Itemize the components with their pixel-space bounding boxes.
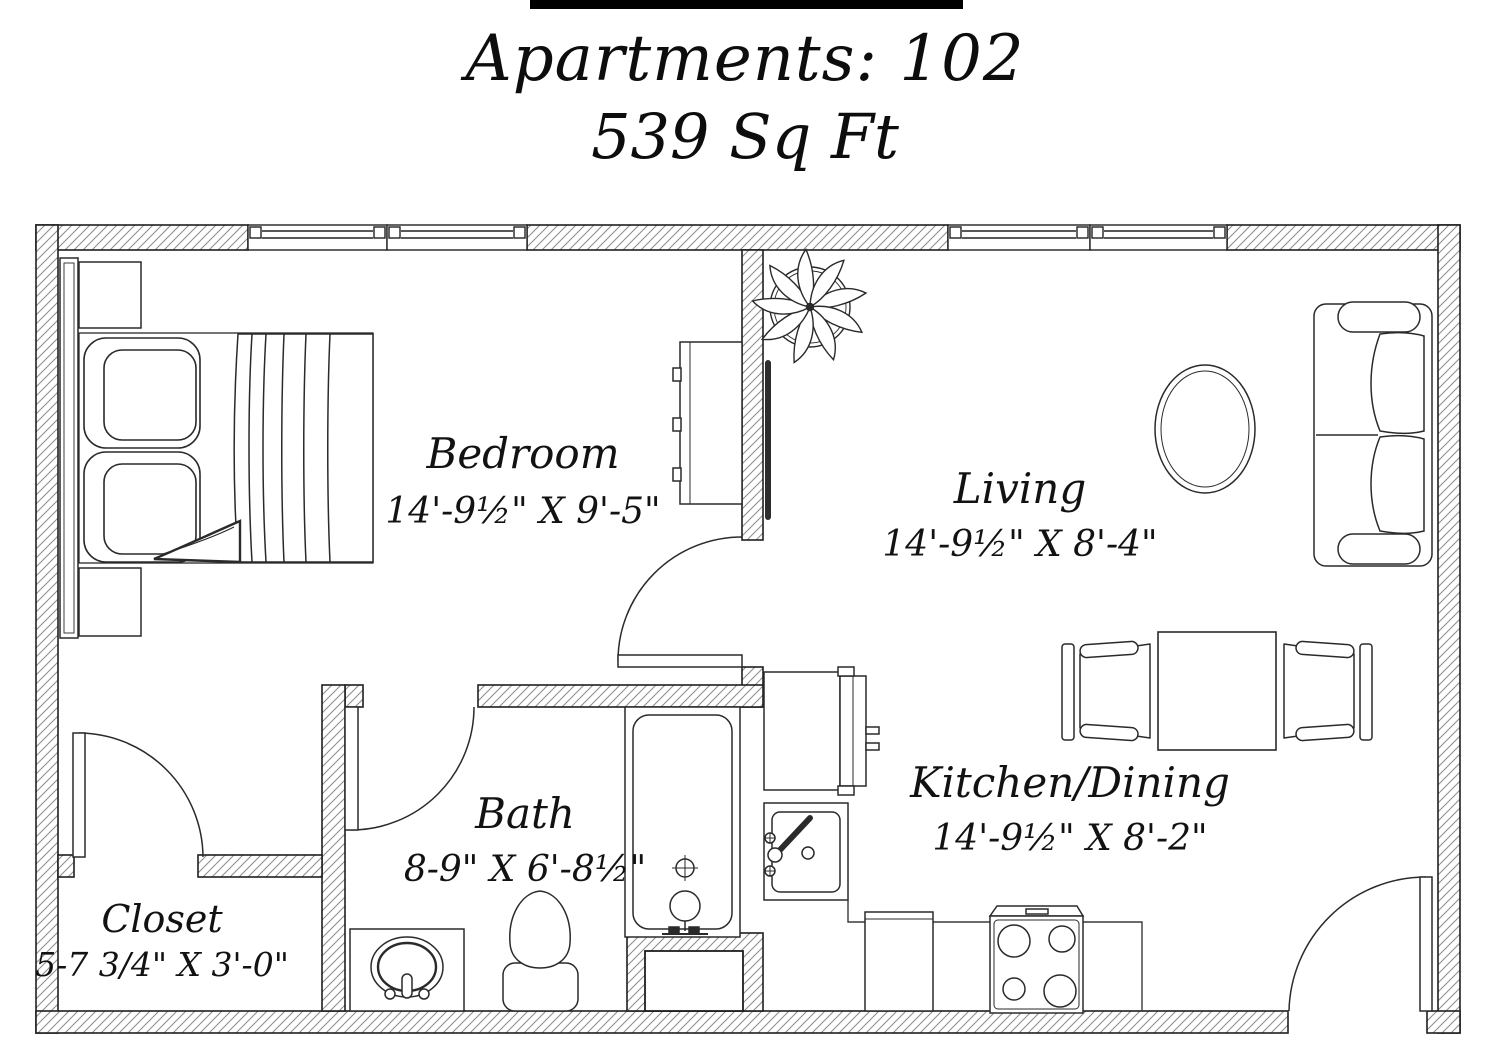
vanity-sink-icon — [350, 929, 464, 1011]
coffee-table-icon — [1155, 365, 1255, 493]
living-label: Living — [953, 464, 1086, 513]
bathtub-icon — [625, 707, 740, 937]
closet-dimensions: 5-7 3/4" X 3'-0" — [35, 945, 289, 984]
kitchen-sink-icon — [764, 803, 848, 900]
nightstand-top-icon — [79, 262, 141, 328]
living-window-right — [1090, 225, 1227, 250]
dishwasher-icon — [865, 912, 933, 1011]
bedroom-label: Bedroom — [425, 429, 619, 478]
bedroom-door-icon — [618, 537, 742, 667]
bedroom-window-right — [387, 225, 527, 250]
entry-door-icon — [1289, 877, 1432, 1011]
closet-label: Closet — [101, 897, 223, 941]
living-dimensions: 14'-9½" X 8'-4" — [882, 524, 1157, 565]
bedroom-window-left — [248, 225, 387, 250]
dining-chair-left-icon — [1062, 641, 1150, 741]
wall-tv-icon — [765, 360, 771, 520]
bath-door-icon — [345, 707, 474, 830]
refrigerator-icon — [764, 667, 879, 795]
plant-icon — [751, 249, 866, 365]
bath-dimensions: 8-9" X 6'-8½" — [404, 849, 646, 890]
bedroom-dimensions: 14'-9½" X 9'-5" — [385, 491, 660, 532]
closet-door-icon — [73, 733, 203, 857]
stove-icon — [990, 906, 1083, 1013]
nightstand-bottom-icon — [79, 568, 141, 636]
kitchen-dining-dimensions: 14'-9½" X 8'-2" — [932, 818, 1207, 859]
floor-plan-page: Apartments: 102 539 Sq Ft — [0, 0, 1490, 1060]
toilet-icon — [503, 891, 578, 1011]
dining-table-icon — [1158, 632, 1276, 750]
living-window-left — [948, 225, 1090, 250]
dresser-icon — [673, 342, 742, 504]
bed-icon — [60, 258, 373, 638]
kitchen-dining-label: Kitchen/Dining — [909, 758, 1230, 807]
dining-chair-right-icon — [1284, 641, 1372, 741]
wall-niche — [645, 951, 743, 1011]
floor-plan-drawing: Bedroom 14'-9½" X 9'-5" Living 14'-9½" X… — [0, 0, 1490, 1060]
sofa-icon — [1314, 302, 1432, 566]
bath-label: Bath — [474, 789, 575, 838]
